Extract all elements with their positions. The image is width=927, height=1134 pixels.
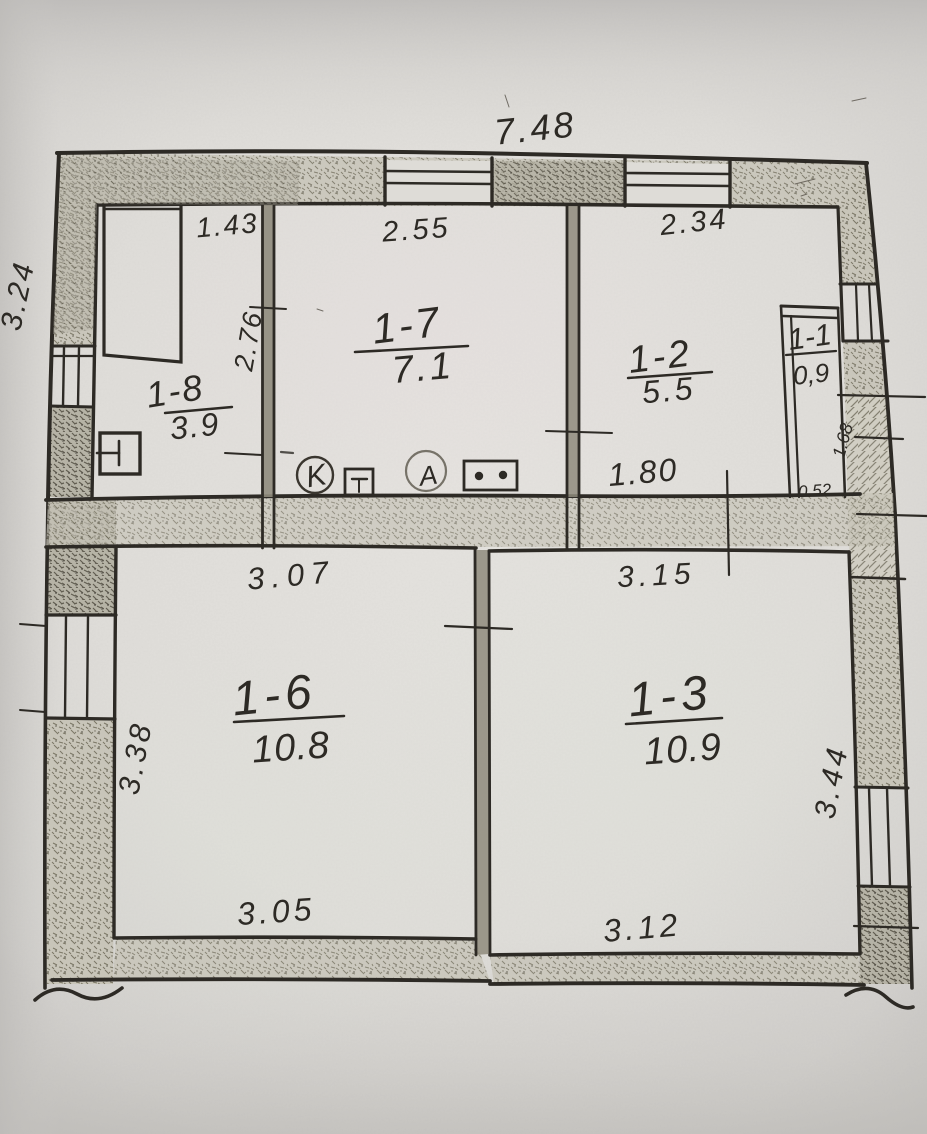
svg-text:3.05: 3.05	[236, 891, 317, 932]
svg-text:1.43: 1.43	[195, 207, 260, 243]
svg-text:0.52: 0.52	[797, 480, 832, 501]
svg-text:2.55: 2.55	[380, 212, 452, 249]
svg-text:0,9: 0,9	[792, 357, 831, 391]
svg-text:7.48: 7.48	[492, 103, 578, 152]
svg-text:10.8: 10.8	[251, 724, 332, 771]
svg-text:7.1: 7.1	[390, 345, 455, 392]
svg-text:1.80: 1.80	[607, 451, 680, 493]
svg-text:1-7: 1-7	[369, 298, 444, 353]
svg-text:3.15: 3.15	[616, 557, 696, 594]
svg-text:10.9: 10.9	[643, 726, 724, 773]
svg-text:3.9: 3.9	[168, 405, 222, 446]
svg-text:5.5: 5.5	[640, 370, 696, 411]
svg-text:3.12: 3.12	[602, 906, 683, 949]
